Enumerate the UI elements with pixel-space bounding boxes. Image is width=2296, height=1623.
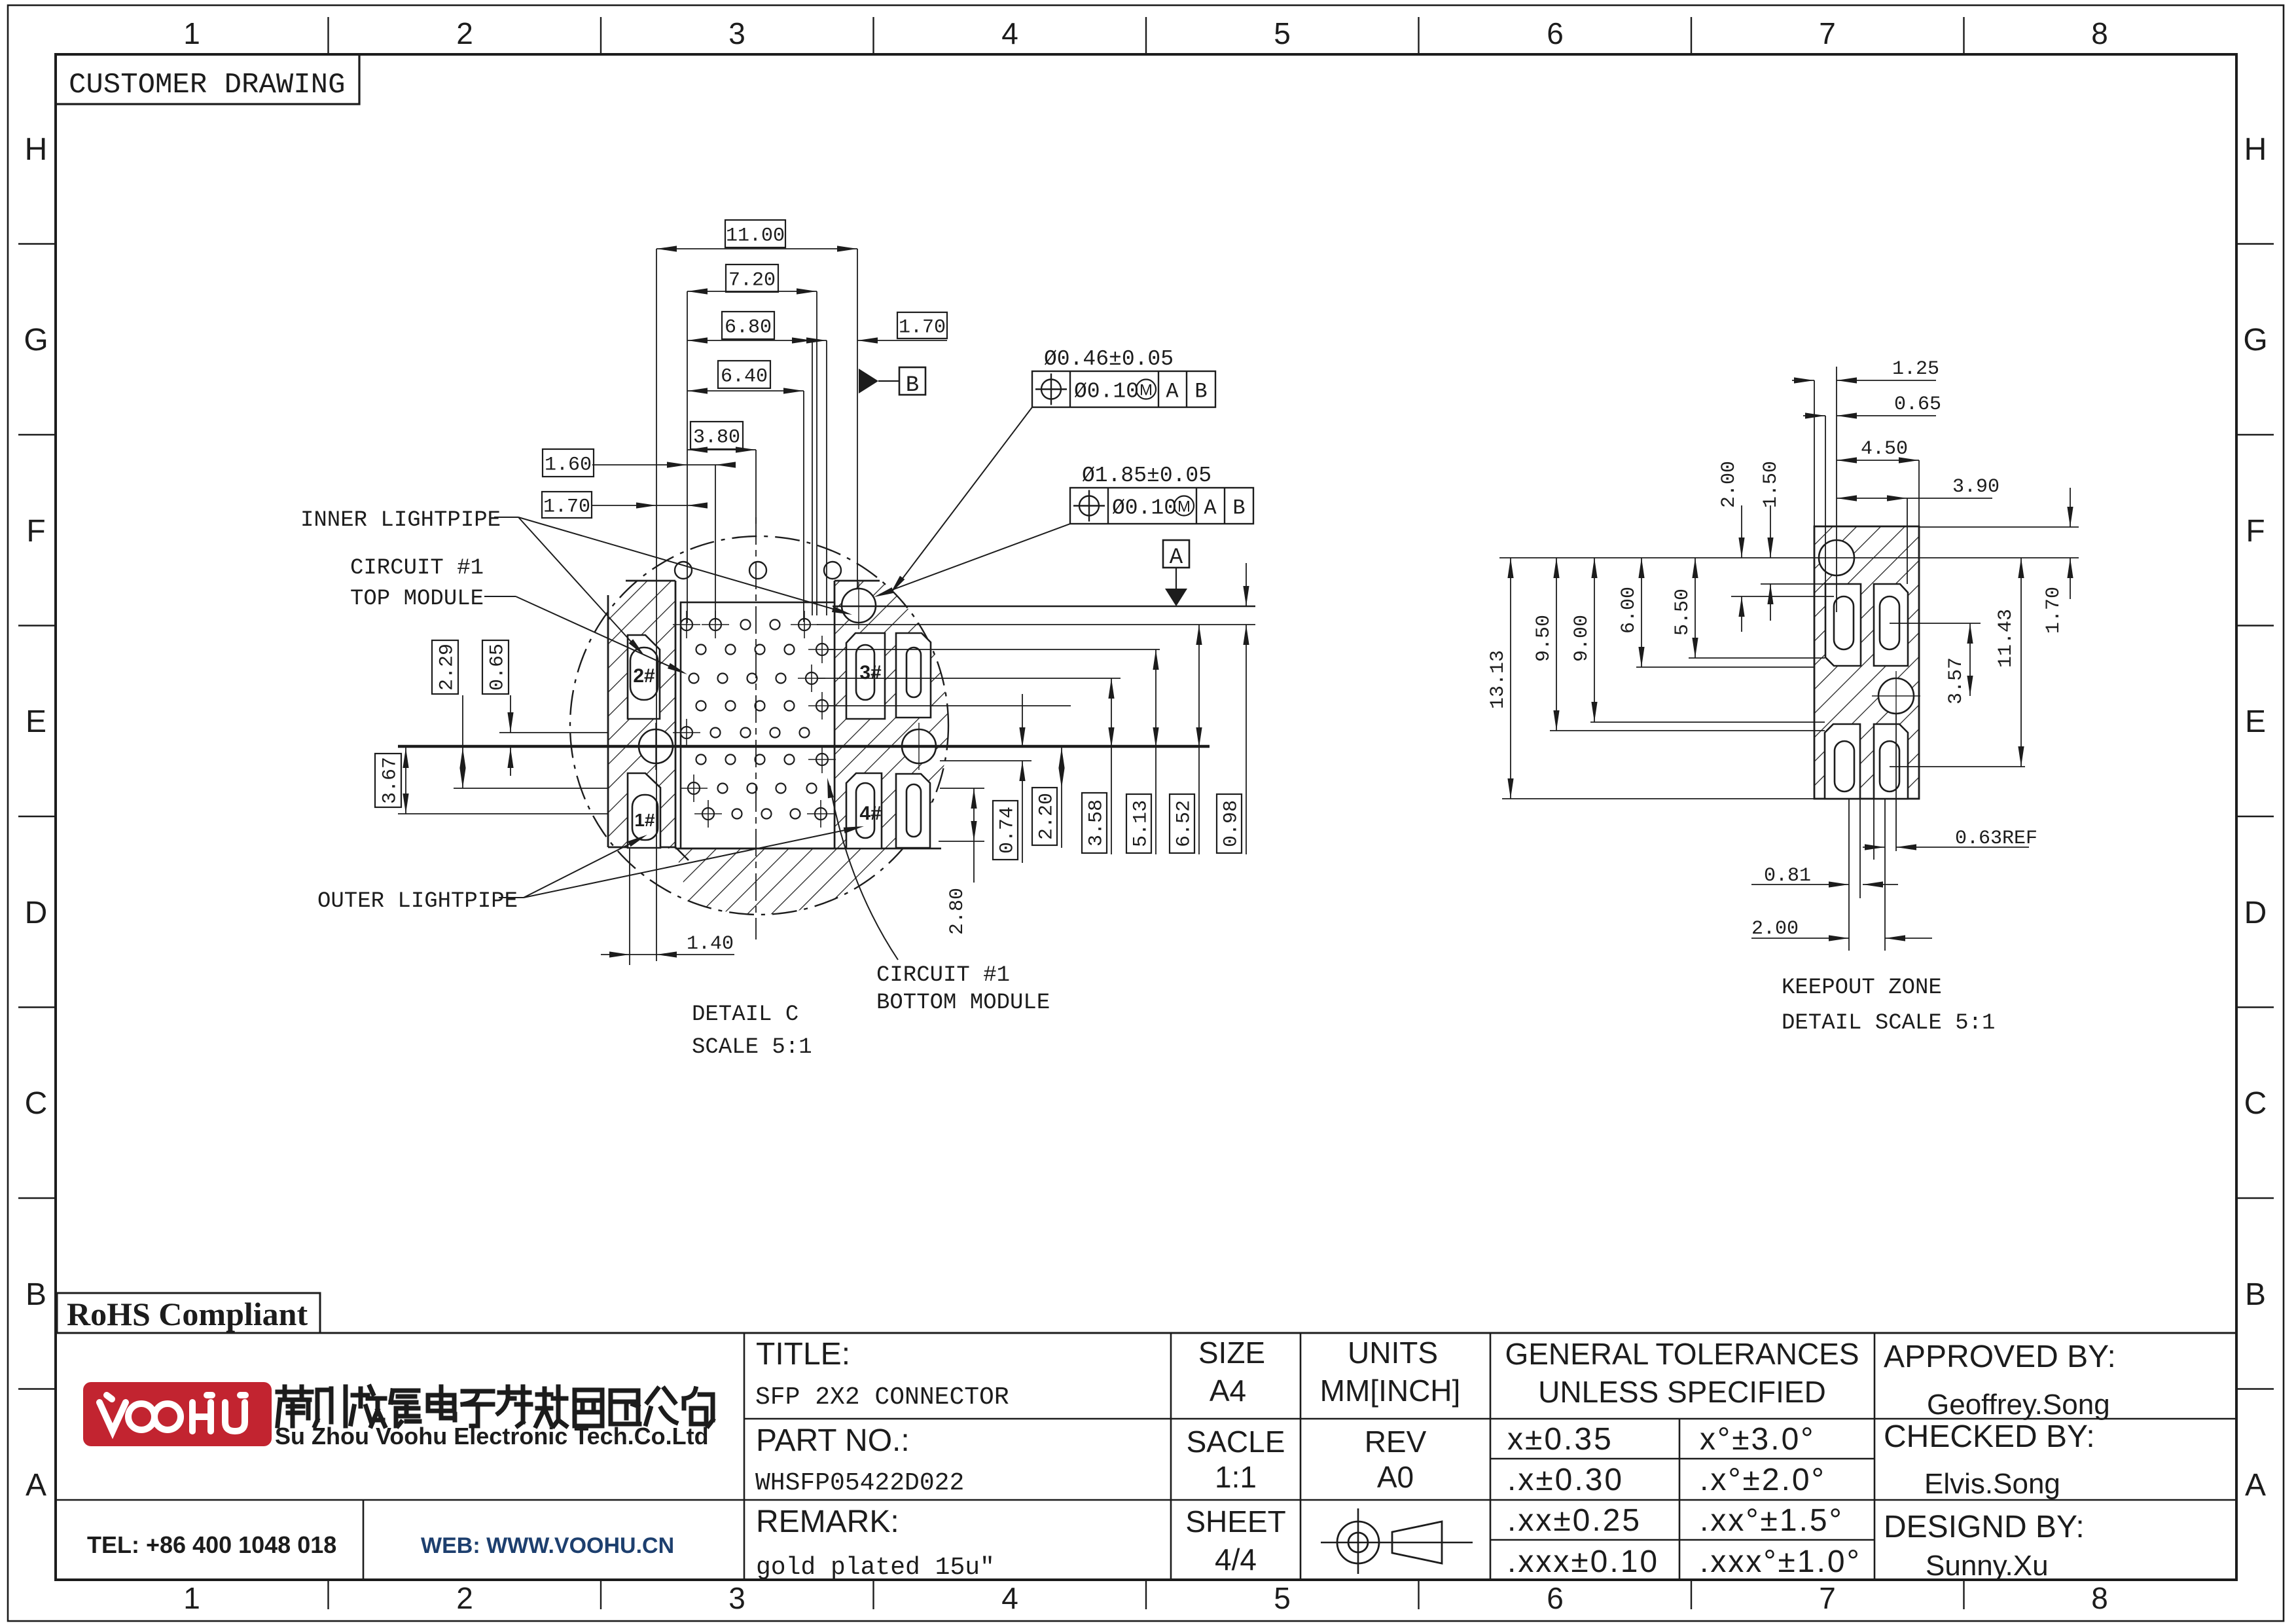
svg-text:4: 4 — [1001, 16, 1018, 50]
svg-text:B: B — [1232, 496, 1245, 520]
svg-text:SCALE 5:1: SCALE 5:1 — [692, 1035, 812, 1060]
svg-text:1.70: 1.70 — [899, 317, 946, 339]
svg-text:Sunny.Xu: Sunny.Xu — [1926, 1550, 2049, 1582]
svg-text:1:1: 1:1 — [1215, 1460, 1257, 1494]
svg-text:.xxx±0.10: .xxx±0.10 — [1507, 1544, 1659, 1579]
svg-text:APPROVED BY:: APPROVED BY: — [1884, 1340, 2116, 1374]
svg-text:5.13: 5.13 — [1130, 800, 1153, 847]
svg-text:KEEPOUT ZONE: KEEPOUT ZONE — [1782, 976, 1942, 1000]
svg-text:2: 2 — [456, 1581, 473, 1615]
svg-text:1.70: 1.70 — [543, 496, 590, 519]
svg-text:5: 5 — [1274, 1581, 1291, 1615]
svg-text:4.50: 4.50 — [1861, 438, 1908, 460]
svg-text:A0: A0 — [1377, 1460, 1414, 1494]
svg-text:2: 2 — [456, 16, 473, 50]
svg-text:Ø0.46±0.05: Ø0.46±0.05 — [1044, 347, 1174, 371]
svg-text:Elvis.Song: Elvis.Song — [1924, 1468, 2060, 1500]
svg-text:WEB: WWW.VOOHU.CN: WEB: WWW.VOOHU.CN — [421, 1533, 674, 1558]
svg-text:1.25: 1.25 — [1892, 358, 1939, 380]
svg-text:1.70: 1.70 — [2043, 587, 2065, 634]
svg-text:0.81: 0.81 — [1764, 865, 1811, 887]
svg-text:1.50: 1.50 — [1760, 461, 1782, 508]
svg-text:M: M — [1139, 382, 1153, 399]
svg-text:6: 6 — [1547, 16, 1564, 50]
svg-text:INNER LIGHTPIPE: INNER LIGHTPIPE — [300, 508, 501, 533]
svg-text:3#: 3# — [859, 662, 882, 684]
svg-text:9.50: 9.50 — [1533, 615, 1555, 662]
svg-text:8: 8 — [2091, 16, 2108, 50]
svg-text:SHEET: SHEET — [1185, 1504, 1285, 1539]
svg-text:UNITS: UNITS — [1348, 1336, 1438, 1370]
svg-text:7: 7 — [1819, 1581, 1836, 1615]
svg-text:OUTER LIGHTPIPE: OUTER LIGHTPIPE — [317, 889, 518, 914]
svg-text:5.50: 5.50 — [1672, 589, 1694, 636]
svg-text:TEL: +86 400 1048 018: TEL: +86 400 1048 018 — [87, 1531, 336, 1558]
svg-text:A: A — [1170, 545, 1183, 570]
svg-text:1.40: 1.40 — [687, 933, 734, 955]
svg-text:2#: 2# — [633, 665, 655, 687]
svg-text:PART NO.:: PART NO.: — [756, 1423, 910, 1458]
svg-text:5: 5 — [1274, 16, 1291, 50]
svg-text:0.98: 0.98 — [1221, 800, 1243, 847]
svg-text:6.00: 6.00 — [1618, 587, 1640, 634]
svg-text:3.57: 3.57 — [1945, 657, 1967, 704]
svg-text:A: A — [2245, 1468, 2266, 1503]
svg-text:UNLESS SPECIFIED: UNLESS SPECIFIED — [1538, 1375, 1826, 1409]
svg-text:H: H — [2244, 132, 2267, 167]
svg-text:9.00: 9.00 — [1571, 615, 1593, 662]
svg-text:4: 4 — [1001, 1581, 1018, 1615]
svg-text:x±0.35: x±0.35 — [1507, 1422, 1613, 1457]
svg-text:G: G — [2243, 323, 2267, 357]
svg-text:B: B — [2245, 1277, 2266, 1312]
svg-text:2.00: 2.00 — [1718, 461, 1740, 508]
svg-text:4#: 4# — [859, 803, 882, 824]
svg-text:REMARK:: REMARK: — [756, 1504, 899, 1539]
svg-text:F: F — [26, 514, 45, 549]
svg-text:1.60: 1.60 — [545, 454, 592, 477]
svg-text:.xx°±1.5°: .xx°±1.5° — [1700, 1503, 1844, 1538]
svg-text:x°±3.0°: x°±3.0° — [1700, 1422, 1815, 1457]
svg-text:2.20: 2.20 — [1036, 793, 1058, 840]
svg-text:6.52: 6.52 — [1174, 800, 1196, 847]
svg-text:DESIGND BY:: DESIGND BY: — [1884, 1510, 2085, 1544]
svg-text:.xxx°±1.0°: .xxx°±1.0° — [1700, 1544, 1861, 1579]
svg-text:B: B — [906, 373, 919, 398]
svg-text:DETAIL C: DETAIL C — [692, 1002, 798, 1027]
svg-text:.xx±0.25: .xx±0.25 — [1507, 1503, 1641, 1538]
svg-text:A: A — [1166, 380, 1179, 404]
svg-text:.x±0.30: .x±0.30 — [1507, 1463, 1624, 1497]
svg-text:0.65: 0.65 — [1894, 393, 1941, 416]
svg-text:D: D — [25, 896, 48, 930]
svg-text:Ø0.10: Ø0.10 — [1074, 380, 1139, 404]
svg-text:E: E — [2245, 704, 2266, 739]
svg-text:B: B — [1194, 380, 1207, 404]
svg-text:CIRCUIT #1: CIRCUIT #1 — [876, 963, 1010, 988]
svg-text:DETAIL SCALE 5:1: DETAIL SCALE 5:1 — [1782, 1011, 1995, 1036]
svg-text:G: G — [24, 323, 48, 357]
svg-text:C: C — [2244, 1086, 2267, 1121]
svg-text:11.00: 11.00 — [726, 225, 785, 247]
svg-text:A: A — [1204, 496, 1217, 520]
svg-text:1: 1 — [183, 1581, 200, 1615]
svg-text:M: M — [1177, 498, 1191, 516]
svg-text:0.65: 0.65 — [487, 644, 509, 691]
svg-text:RoHS Compliant: RoHS Compliant — [67, 1296, 308, 1332]
svg-text:7: 7 — [1819, 16, 1836, 50]
svg-text:3: 3 — [728, 1581, 745, 1615]
svg-text:Ø0.10: Ø0.10 — [1112, 496, 1177, 520]
svg-text:1: 1 — [183, 16, 200, 50]
svg-text:7.20: 7.20 — [728, 270, 776, 292]
svg-text:REV: REV — [1365, 1425, 1427, 1459]
svg-text:WHSFP05422D022: WHSFP05422D022 — [755, 1469, 964, 1497]
svg-text:3.67: 3.67 — [380, 757, 402, 804]
svg-text:GENERAL TOLERANCES: GENERAL TOLERANCES — [1505, 1337, 1859, 1371]
svg-text:6: 6 — [1547, 1581, 1564, 1615]
svg-text:3.90: 3.90 — [1952, 476, 2000, 498]
svg-text:11.43: 11.43 — [1995, 609, 2017, 668]
svg-text:Su Zhou Voohu Electronic Tech.: Su Zhou Voohu Electronic Tech.Co.Ltd — [275, 1423, 709, 1450]
svg-text:CIRCUIT #1: CIRCUIT #1 — [350, 556, 484, 581]
svg-text:H: H — [25, 132, 48, 167]
svg-text:3: 3 — [728, 16, 745, 50]
svg-text:6.80: 6.80 — [725, 317, 772, 339]
svg-text:Geoffrey.Song: Geoffrey.Song — [1927, 1389, 2110, 1421]
svg-text:2.80: 2.80 — [946, 888, 969, 935]
svg-text:E: E — [26, 704, 46, 739]
svg-text:Ø1.85±0.05: Ø1.85±0.05 — [1082, 464, 1211, 488]
svg-text:6.40: 6.40 — [721, 366, 768, 388]
svg-text:MM[INCH]: MM[INCH] — [1320, 1374, 1461, 1408]
svg-text:3.58: 3.58 — [1086, 799, 1108, 847]
svg-text:A4: A4 — [1210, 1374, 1246, 1408]
svg-text:0.74: 0.74 — [997, 807, 1019, 854]
svg-text:4/4: 4/4 — [1215, 1542, 1257, 1577]
svg-text:CUSTOMER DRAWING: CUSTOMER DRAWING — [69, 69, 345, 101]
svg-text:2.29: 2.29 — [437, 644, 459, 691]
svg-text:BOTTOM MODULE: BOTTOM MODULE — [876, 991, 1050, 1015]
svg-text:A: A — [26, 1468, 46, 1503]
svg-text:13.13: 13.13 — [1487, 650, 1509, 709]
svg-text:B: B — [26, 1277, 46, 1312]
svg-text:C: C — [25, 1086, 48, 1121]
svg-text:3.80: 3.80 — [693, 427, 740, 449]
svg-text:SACLE: SACLE — [1187, 1425, 1285, 1459]
svg-text:D: D — [2244, 896, 2267, 930]
svg-text:0.63REF: 0.63REF — [1955, 828, 2037, 850]
svg-text:CHECKED BY:: CHECKED BY: — [1884, 1419, 2095, 1454]
svg-text:gold plated 15u″: gold plated 15u″ — [756, 1554, 995, 1582]
svg-text:1#: 1# — [634, 810, 655, 830]
svg-text:SFP 2X2 CONNECTOR: SFP 2X2 CONNECTOR — [755, 1383, 1009, 1412]
svg-text:TITLE:: TITLE: — [756, 1337, 850, 1372]
svg-text:TOP MODULE: TOP MODULE — [350, 587, 484, 611]
svg-text:2.00: 2.00 — [1751, 918, 1799, 940]
svg-text:SIZE: SIZE — [1198, 1336, 1265, 1370]
svg-text:8: 8 — [2091, 1581, 2108, 1615]
svg-text:.x°±2.0°: .x°±2.0° — [1700, 1463, 1826, 1497]
svg-text:F: F — [2246, 514, 2265, 549]
